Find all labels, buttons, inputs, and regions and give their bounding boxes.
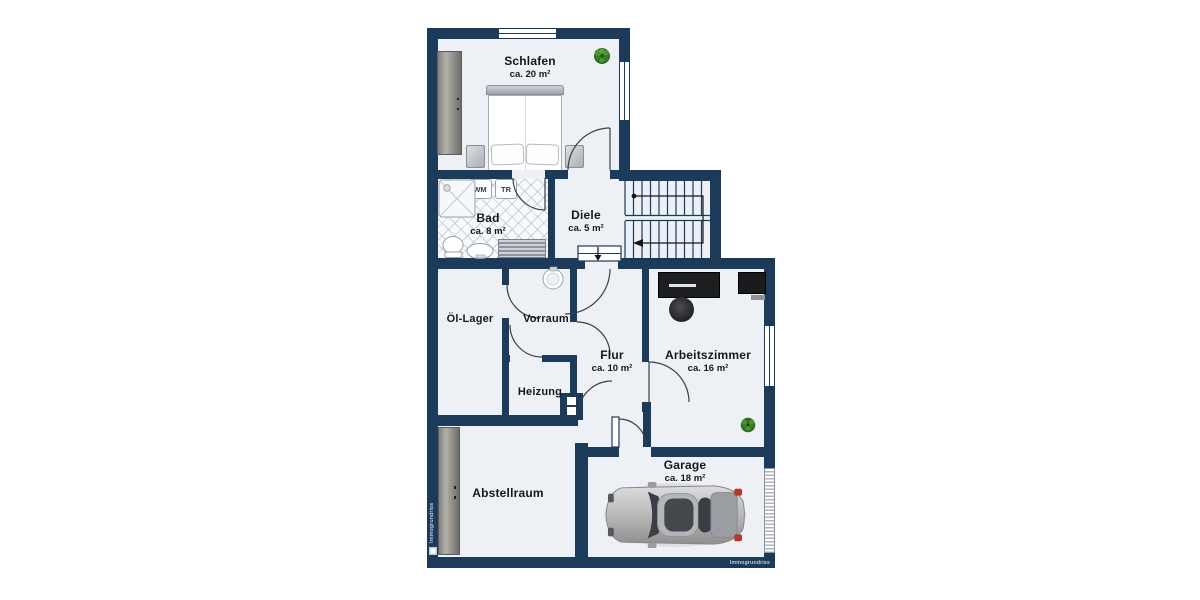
room-label-heizung: Heizung <box>518 386 562 398</box>
washing-machine-label: WM <box>473 185 486 194</box>
wall <box>542 355 577 362</box>
room-label-abstellraum: Abstellraum <box>472 486 544 500</box>
plant-schlafen <box>591 45 613 67</box>
room-name: Abstellraum <box>472 486 544 500</box>
radiator <box>498 239 546 258</box>
wall <box>427 258 585 269</box>
car-top-view <box>602 481 748 549</box>
floor-plan-canvas: WM TR <box>0 0 1200 600</box>
room-area: ca. 8 m² <box>470 226 505 237</box>
car <box>602 481 748 549</box>
washing-machine: WM <box>468 179 492 199</box>
room-name: Diele <box>568 208 603 222</box>
wall <box>643 410 651 447</box>
room-name: Vorraum <box>523 313 569 325</box>
room-name: Flur <box>592 348 633 362</box>
desk <box>658 272 720 298</box>
wall <box>427 557 775 568</box>
wall <box>610 170 619 179</box>
room-label-garage: Garage ca. 18 m² <box>664 458 707 484</box>
wall <box>502 269 509 285</box>
wall <box>619 170 721 181</box>
wall <box>575 443 588 557</box>
pillow-left <box>491 143 525 165</box>
room-name: Arbeitszimmer <box>665 348 751 362</box>
room-name: Heizung <box>518 386 562 398</box>
wall <box>651 447 764 457</box>
floor-plan: WM TR <box>420 15 780 575</box>
wall <box>618 258 775 269</box>
room-name: Garage <box>664 458 707 472</box>
room-area: ca. 10 m² <box>592 363 633 374</box>
room-area: ca. 16 m² <box>665 363 751 374</box>
window-arbeitszimmer <box>764 325 775 387</box>
room-name: Schlafen <box>504 54 556 68</box>
room-label-oel-lager: Öl-Lager <box>447 313 494 325</box>
window-schlafen-right <box>619 61 630 121</box>
wall <box>505 355 510 362</box>
watermark-logo <box>429 547 437 555</box>
room-label-diele: Diele ca. 5 m² <box>568 208 603 234</box>
wall <box>545 170 568 179</box>
room-label-schlafen: Schlafen ca. 20 m² <box>504 54 556 80</box>
window-schlafen-top <box>498 28 557 39</box>
wall <box>438 170 512 179</box>
wall <box>548 179 555 258</box>
storage-shelf <box>438 427 460 555</box>
wall <box>570 269 577 322</box>
room-area: ca. 5 m² <box>568 223 603 234</box>
room-label-arbeitszimmer: Arbeitszimmer ca. 16 m² <box>665 348 751 374</box>
garage-door <box>764 468 775 553</box>
wall <box>570 362 577 393</box>
wall <box>642 402 651 412</box>
watermark-bottom: Immogrundriss <box>730 560 770 566</box>
desk-monitor <box>669 284 696 287</box>
wall <box>710 170 721 269</box>
wardrobe <box>437 51 462 155</box>
wall <box>575 447 619 457</box>
room-label-vorraum: Vorraum <box>523 313 569 325</box>
room-area: ca. 20 m² <box>504 69 556 80</box>
bed-footboard <box>486 85 564 95</box>
watermark-side: Immogrundriss <box>429 503 435 543</box>
room-name: Bad <box>470 211 505 225</box>
pillow-right <box>526 143 560 165</box>
office-chair <box>669 297 694 322</box>
plant-icon <box>738 415 758 435</box>
cabinet <box>738 272 766 294</box>
room-name: Öl-Lager <box>447 313 494 325</box>
room-label-bad: Bad ca. 8 m² <box>470 211 505 237</box>
wall <box>502 318 509 418</box>
dryer-label: TR <box>501 185 511 194</box>
room-area: ca. 18 m² <box>664 473 707 484</box>
wall <box>427 415 578 426</box>
room-label-flur: Flur ca. 10 m² <box>592 348 633 374</box>
plant-arbeitszimmer <box>738 415 758 435</box>
nightstand-right <box>565 145 584 168</box>
cabinet-base <box>751 295 765 300</box>
nightstand-left <box>466 145 485 168</box>
dryer: TR <box>495 179 517 199</box>
wall <box>642 269 649 362</box>
plant-icon <box>591 45 613 67</box>
